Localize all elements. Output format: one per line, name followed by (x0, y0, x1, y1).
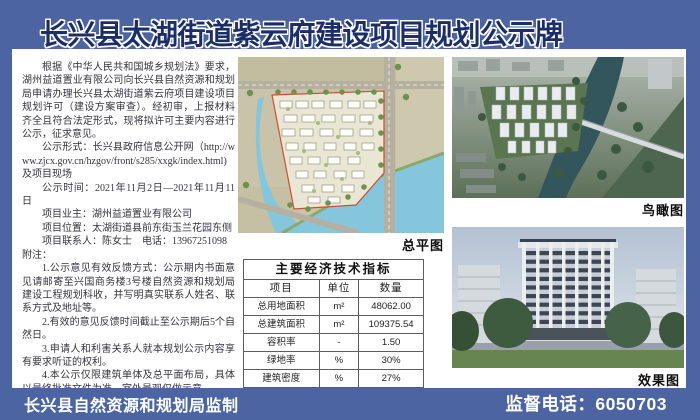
footer-issuer: 长兴县自然资源和规划局监制 (24, 392, 239, 416)
site-plan-label: 总平图 (238, 235, 444, 254)
notice-text: 根据《中华人民共和国城乡规划法》要求，湖州益道置业有限公司向长兴县自然资源和规划… (22, 61, 235, 388)
table-row: 建筑密度%27% (244, 370, 424, 388)
notice-paragraph: 项目位置：太湖街道县前东街玉兰花园东侧 (22, 222, 235, 235)
notice-paragraph: 1.公示意见有效反馈方式：公示期内书面意见请邮寄至兴国商务楼3号楼自然资源和规划… (22, 262, 235, 316)
aerial-view-label: 鸟瞰图 (452, 200, 684, 219)
table-cell: 建筑密度 (244, 370, 320, 388)
notice-paragraph: 项目业主：湖州益道置业有限公司 (22, 208, 235, 221)
public-notice-board: 长兴县太湖街道紫云府建设项目规划公示牌 根据《中华人民共和国城乡规划法》要求，湖… (0, 0, 700, 420)
notice-paragraph: 根据《中华人民共和国城乡规划法》要求，湖州益道置业有限公司向长兴县自然资源和规划… (22, 61, 235, 141)
page-title: 长兴县太湖街道紫云府建设项目规划公示牌 (40, 13, 563, 53)
rendering-image (452, 227, 684, 368)
table-row: 容积率-1.50 (244, 334, 424, 352)
notice-panel: 根据《中华人民共和国城乡规划法》要求，湖州益道置业有限公司向长兴县自然资源和规划… (12, 49, 686, 388)
site-plan-image (238, 57, 444, 233)
table-cell: 总建筑面积 (244, 316, 320, 334)
notice-paragraph: 附注： (22, 249, 235, 262)
table-header-cell: 项目 (244, 280, 320, 298)
table-cell: % (319, 352, 359, 370)
table-cell: - (319, 334, 359, 352)
table-cell: 48062.00 (359, 298, 424, 316)
indicators-table: 主要经济技术指标项目单位数量总用地面积m²48062.00总建筑面积m²1093… (243, 259, 424, 388)
notice-paragraph: 公示形式：长兴县政府信息公开网（http://www.zjcx.gov.cn/h… (22, 141, 235, 181)
table-cell: 27% (359, 370, 424, 388)
indicators-table-wrap: 主要经济技术指标项目单位数量总用地面积m²48062.00总建筑面积m²1093… (243, 259, 424, 388)
footer-phone: 监督电话：6050703 (505, 391, 667, 416)
table-cell: 1.50 (359, 334, 424, 352)
notice-paragraph: 3.申请人和利害关系人就本规划公示内容享有要求听证的权利。 (22, 343, 235, 370)
table-cell: 109375.54 (359, 316, 424, 334)
aerial-view-image (452, 57, 684, 198)
table-cell: m² (319, 316, 359, 334)
rendering-label: 效果图 (456, 370, 680, 388)
notice-paragraph: 4.本公示仅限建筑单体及总平面布局，具体以最终批准文件为准，室外景观仅做示意。 (22, 369, 235, 388)
table-title: 主要经济技术指标 (244, 260, 424, 280)
table-header-cell: 单位 (319, 280, 359, 298)
table-cell: 30% (359, 352, 424, 370)
table-cell: 容积率 (244, 334, 320, 352)
notice-paragraph: 公示时间：2021年11月2日—2021年11月11日 (22, 182, 235, 209)
table-cell: % (319, 370, 359, 388)
notice-paragraph: 项目联系人：陈女士 电话：13967251098 (22, 235, 235, 248)
table-row: 总建筑面积m²109375.54 (244, 316, 424, 334)
table-header-cell: 数量 (359, 280, 424, 298)
table-row: 绿地率%30% (244, 352, 424, 370)
table-cell: m² (319, 298, 359, 316)
notice-paragraph: 2.有效的意见反馈时间截止至公示期后5个自然日。 (22, 316, 235, 343)
table-row: 总用地面积m²48062.00 (244, 298, 424, 316)
table-cell: 绿地率 (244, 352, 320, 370)
table-cell: 总用地面积 (244, 298, 320, 316)
